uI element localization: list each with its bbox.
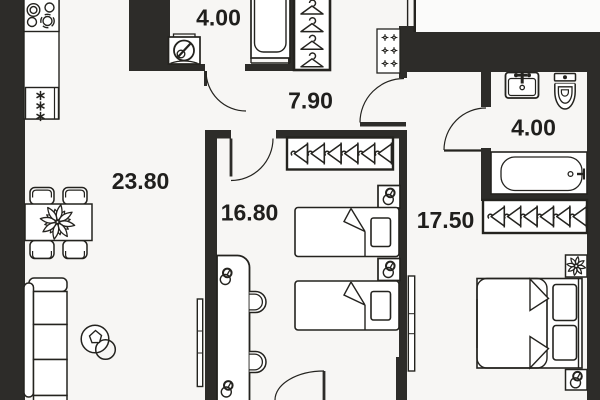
svg-text:4.00: 4.00 xyxy=(196,5,241,31)
svg-text:17.50: 17.50 xyxy=(417,207,475,233)
svg-text:4.00: 4.00 xyxy=(511,115,556,141)
svg-text:23.80: 23.80 xyxy=(112,168,170,194)
svg-text:7.90: 7.90 xyxy=(288,88,333,114)
svg-text:16.80: 16.80 xyxy=(221,200,279,226)
